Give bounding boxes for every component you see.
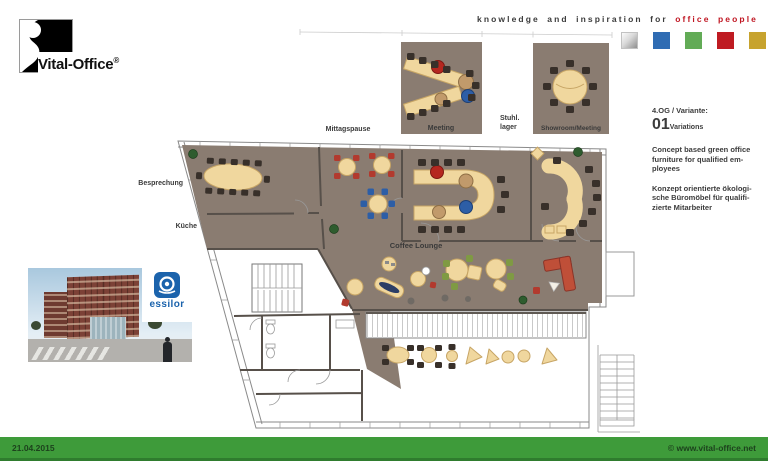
building-photo: essilor <box>28 268 192 362</box>
essilor-brand-text: essilor <box>142 299 192 310</box>
essilor-eye-icon <box>154 272 180 298</box>
inset-meeting-label: Meeting <box>428 125 454 132</box>
fire-escape-stair <box>598 345 640 432</box>
footer-date: 21.04.2015 <box>12 443 55 453</box>
inset-showroom: Showroom/Meeting <box>533 43 609 134</box>
stairs <box>252 264 302 312</box>
concept-text-de: Konzept orientierte ökologi- sche Büromö… <box>652 184 762 213</box>
palette-square-green <box>685 32 702 49</box>
tree <box>31 321 41 330</box>
pedestrian-silhouette <box>163 342 172 362</box>
terrace-deck <box>366 312 586 338</box>
inset-meeting-room: Meeting <box>401 42 482 134</box>
logo-wordmark: Vital-Office® <box>38 52 122 74</box>
palette-square-silver <box>621 32 638 49</box>
label-coffee-lounge: Coffee Lounge <box>390 241 443 250</box>
label-kueche: Küche <box>176 223 198 230</box>
label-besprechung: Besprechung <box>138 180 183 187</box>
palette-square-blue <box>653 32 670 49</box>
floor-variant-label: 4.OG / Variante: <box>652 106 762 115</box>
palette-row <box>621 32 766 49</box>
dimension-line <box>300 29 612 38</box>
essilor-logo: essilor <box>142 268 192 322</box>
tagline-red: office people <box>675 14 758 24</box>
label-mittagspause: Mittagspause <box>326 126 371 133</box>
tagline-black: knowledge and inspiration for <box>477 14 668 24</box>
crosswalk <box>31 347 114 360</box>
label-stuhllager-1: Stuhl. <box>500 115 519 122</box>
concept-text-en: Concept based green office furniture for… <box>652 145 762 174</box>
footer-copyright: © www.vital-office.net <box>668 443 756 453</box>
terrace-furniture <box>382 344 557 369</box>
footer-bar: 21.04.2015 © www.vital-office.net <box>0 437 768 461</box>
palette-square-gold <box>749 32 766 49</box>
variant-word: Variations <box>670 124 703 131</box>
wc-fixtures <box>266 320 354 358</box>
registered-mark: ® <box>113 56 119 65</box>
tagline: knowledge and inspiration for office peo… <box>477 14 758 24</box>
balcony <box>606 252 634 296</box>
palette-square-red <box>717 32 734 49</box>
presentation-slide: Meeting Showroom/Meeting <box>0 0 768 461</box>
building-glass-base <box>90 317 126 340</box>
variant-number: 01 <box>652 116 670 133</box>
variant-info-panel: 4.OG / Variante: 01Variations Concept ba… <box>652 106 762 222</box>
label-stuhllager-2: lager <box>500 124 517 131</box>
inset-showroom-label: Showroom/Meeting <box>541 125 601 132</box>
